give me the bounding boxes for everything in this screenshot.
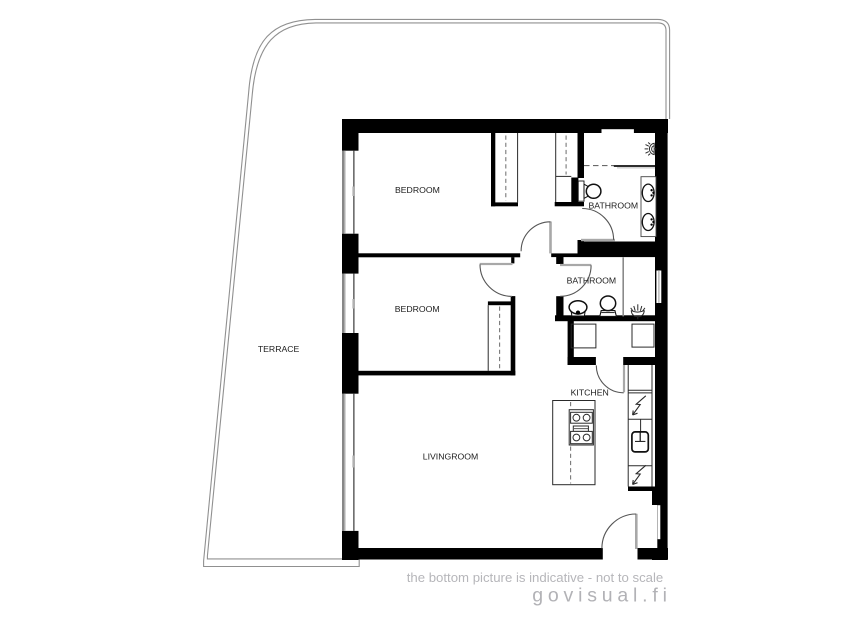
svg-text:BEDROOM: BEDROOM xyxy=(395,304,440,314)
svg-text:govisual.fi: govisual.fi xyxy=(532,585,672,607)
svg-text:BEDROOM: BEDROOM xyxy=(395,185,440,195)
svg-text:BATHROOM: BATHROOM xyxy=(567,276,617,286)
svg-text:BATHROOM: BATHROOM xyxy=(589,201,639,211)
svg-text:TERRACE: TERRACE xyxy=(258,344,300,354)
svg-text:the bottom picture is indicati: the bottom picture is indicative - not t… xyxy=(407,570,664,585)
svg-text:KITCHEN: KITCHEN xyxy=(571,388,609,398)
svg-text:LIVINGROOM: LIVINGROOM xyxy=(423,451,479,461)
